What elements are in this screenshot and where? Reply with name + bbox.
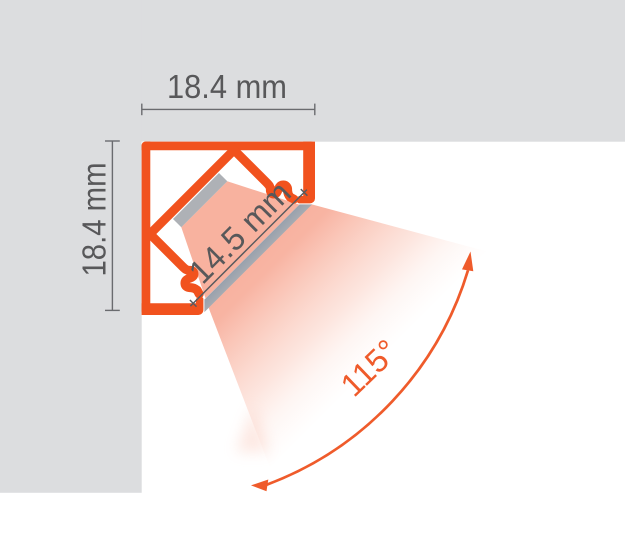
svg-text:18.4 mm: 18.4 mm: [167, 68, 287, 105]
svg-text:18.4 mm: 18.4 mm: [76, 163, 113, 277]
